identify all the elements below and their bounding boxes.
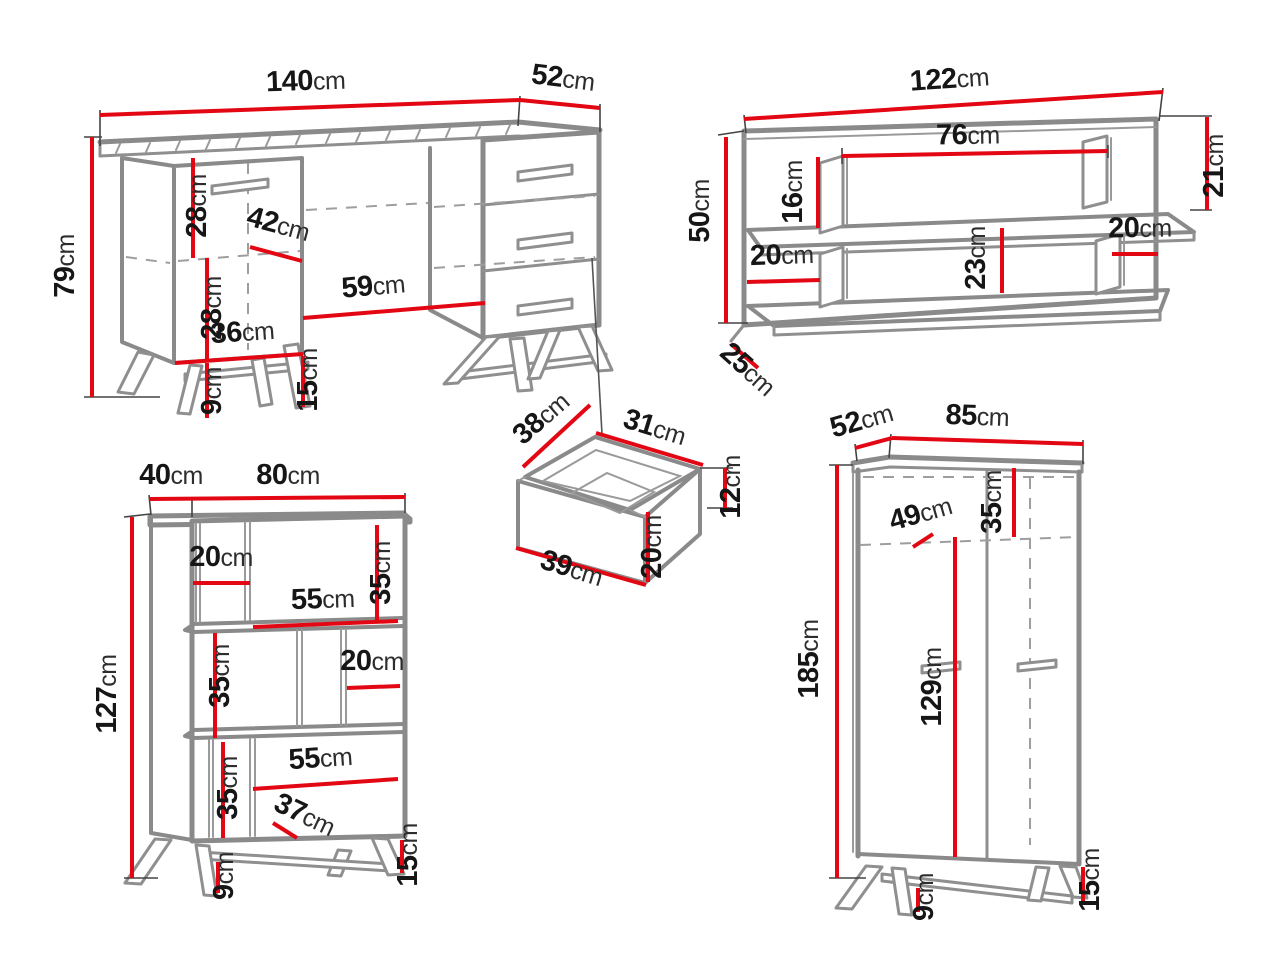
wardrobe-width-label: 85cm <box>945 399 1010 433</box>
shelf-76-label: 76cm <box>936 118 1000 151</box>
bookcase-width-label: 80cm <box>256 459 320 491</box>
bookcase-15-label: 15cm <box>392 823 424 887</box>
wardrobe-bottom-edge <box>858 854 1079 864</box>
bookcase-35-top-label: 35cm <box>365 541 397 605</box>
diagram-canvas: 140cm 52cm 79cm 28cm 42cm 28cm 59cm 36cm… <box>0 0 1280 960</box>
wardrobe-dimension-labels: 52cm 85cm 185cm 49cm 35cm 129cm 9cm 15cm <box>793 396 1106 921</box>
desk-depth-label: 52cm <box>530 58 597 98</box>
shelf-dim-width-line <box>744 92 1163 119</box>
desk-upper28-label: 28cm <box>181 174 213 238</box>
bookcase-127-label: 127cm <box>91 654 123 733</box>
shelf-25-label: 25cm <box>714 336 783 402</box>
desk-width-label: 140cm <box>266 64 346 99</box>
wardrobe-depth-label: 52cm <box>827 396 897 444</box>
wardrobe-drawing: 52cm 85cm 185cm 49cm 35cm 129cm 9cm 15cm <box>793 396 1106 921</box>
shelf-50-label: 50cm <box>684 179 716 243</box>
lower-left-divider <box>820 247 843 307</box>
niche-hidden-line <box>306 203 428 210</box>
shelf-width-label: 122cm <box>909 60 990 97</box>
bookcase-dim-20-mid-line <box>347 686 400 688</box>
wardrobe-185-label: 185cm <box>793 619 825 698</box>
desk-15-label: 15cm <box>292 348 324 412</box>
bookcase-55-top-label: 55cm <box>290 582 355 616</box>
wardrobe-outline <box>836 457 1087 915</box>
wardrobe-35-label: 35cm <box>976 470 1008 534</box>
bookcase-depth-label: 40cm <box>139 459 203 491</box>
wardrobe-top-slab <box>853 457 1082 463</box>
wall-shelf-drawing: 122cm 76cm 21cm 16cm 50cm 20cm 23cm 20cm… <box>684 60 1230 402</box>
furniture-dimensions-diagram: 140cm 52cm 79cm 28cm 42cm 28cm 59cm 36cm… <box>0 0 1280 960</box>
right-pedestal-inner-side <box>430 148 483 338</box>
bookcase-9-label: 9cm <box>208 852 240 900</box>
drawer-12-label: 12cm <box>715 455 747 519</box>
shelf-dim-20-left-line <box>747 280 820 282</box>
shelf-21-label: 21cm <box>1198 134 1230 198</box>
wardrobe-dimension-lines <box>829 434 1083 912</box>
upper-left-divider <box>820 156 843 233</box>
desk-59-label: 59cm <box>340 267 406 304</box>
desk-height-label: 79cm <box>49 234 81 298</box>
desk-drawing: 140cm 52cm 79cm 28cm 42cm 28cm 59cm 36cm… <box>49 58 612 434</box>
drawer-drawing: 38cm 31cm 12cm 20cm 39cm <box>507 385 747 593</box>
shelf-23-label: 23cm <box>960 226 992 290</box>
bookcase-left-side <box>151 518 192 840</box>
drawer-20-label: 20cm <box>636 515 668 579</box>
desk-36-label: 36cm <box>210 314 276 350</box>
wardrobe-handle-right <box>1018 660 1056 671</box>
shelf-20-right-label: 20cm <box>1108 211 1172 244</box>
desk-dim-depth-line <box>520 100 600 108</box>
bookcase-35-bottom-label: 35cm <box>212 756 244 820</box>
desk-dim-width-line <box>100 100 520 115</box>
drawer-38-label: 38cm <box>507 385 576 451</box>
bookcase-55-bottom-label: 55cm <box>288 740 354 776</box>
wardrobe-15-label: 15cm <box>1074 848 1106 912</box>
wardrobe-legs <box>836 866 1087 915</box>
shelf-16-label: 16cm <box>777 160 809 224</box>
wardrobe-49-label: 49cm <box>886 489 956 537</box>
desk-dim-59-line <box>303 303 485 318</box>
wardrobe-dim-width-line <box>892 438 1083 444</box>
shelf-20-left-label: 20cm <box>749 238 814 272</box>
bookcase-dim-top-line <box>149 497 405 499</box>
bookcase-20-top-label: 20cm <box>189 541 253 573</box>
wardrobe-9-label: 9cm <box>908 873 940 921</box>
bookcase-35-mid-label: 35cm <box>204 644 236 708</box>
wardrobe-dim-depth-line <box>855 438 892 448</box>
bookcase-20-mid-label: 20cm <box>340 645 404 677</box>
desk-9-label: 9cm <box>196 367 228 415</box>
desk-outline <box>100 122 612 414</box>
wardrobe-129-label: 129cm <box>916 647 948 726</box>
bookcase-legs <box>125 838 404 896</box>
upper-right-divider <box>1083 136 1107 208</box>
wardrobe-dim-49-line <box>913 534 933 547</box>
bookcase-drawing: 40cm 80cm 127cm 20cm 35cm 55cm 35cm 20cm… <box>91 459 424 900</box>
